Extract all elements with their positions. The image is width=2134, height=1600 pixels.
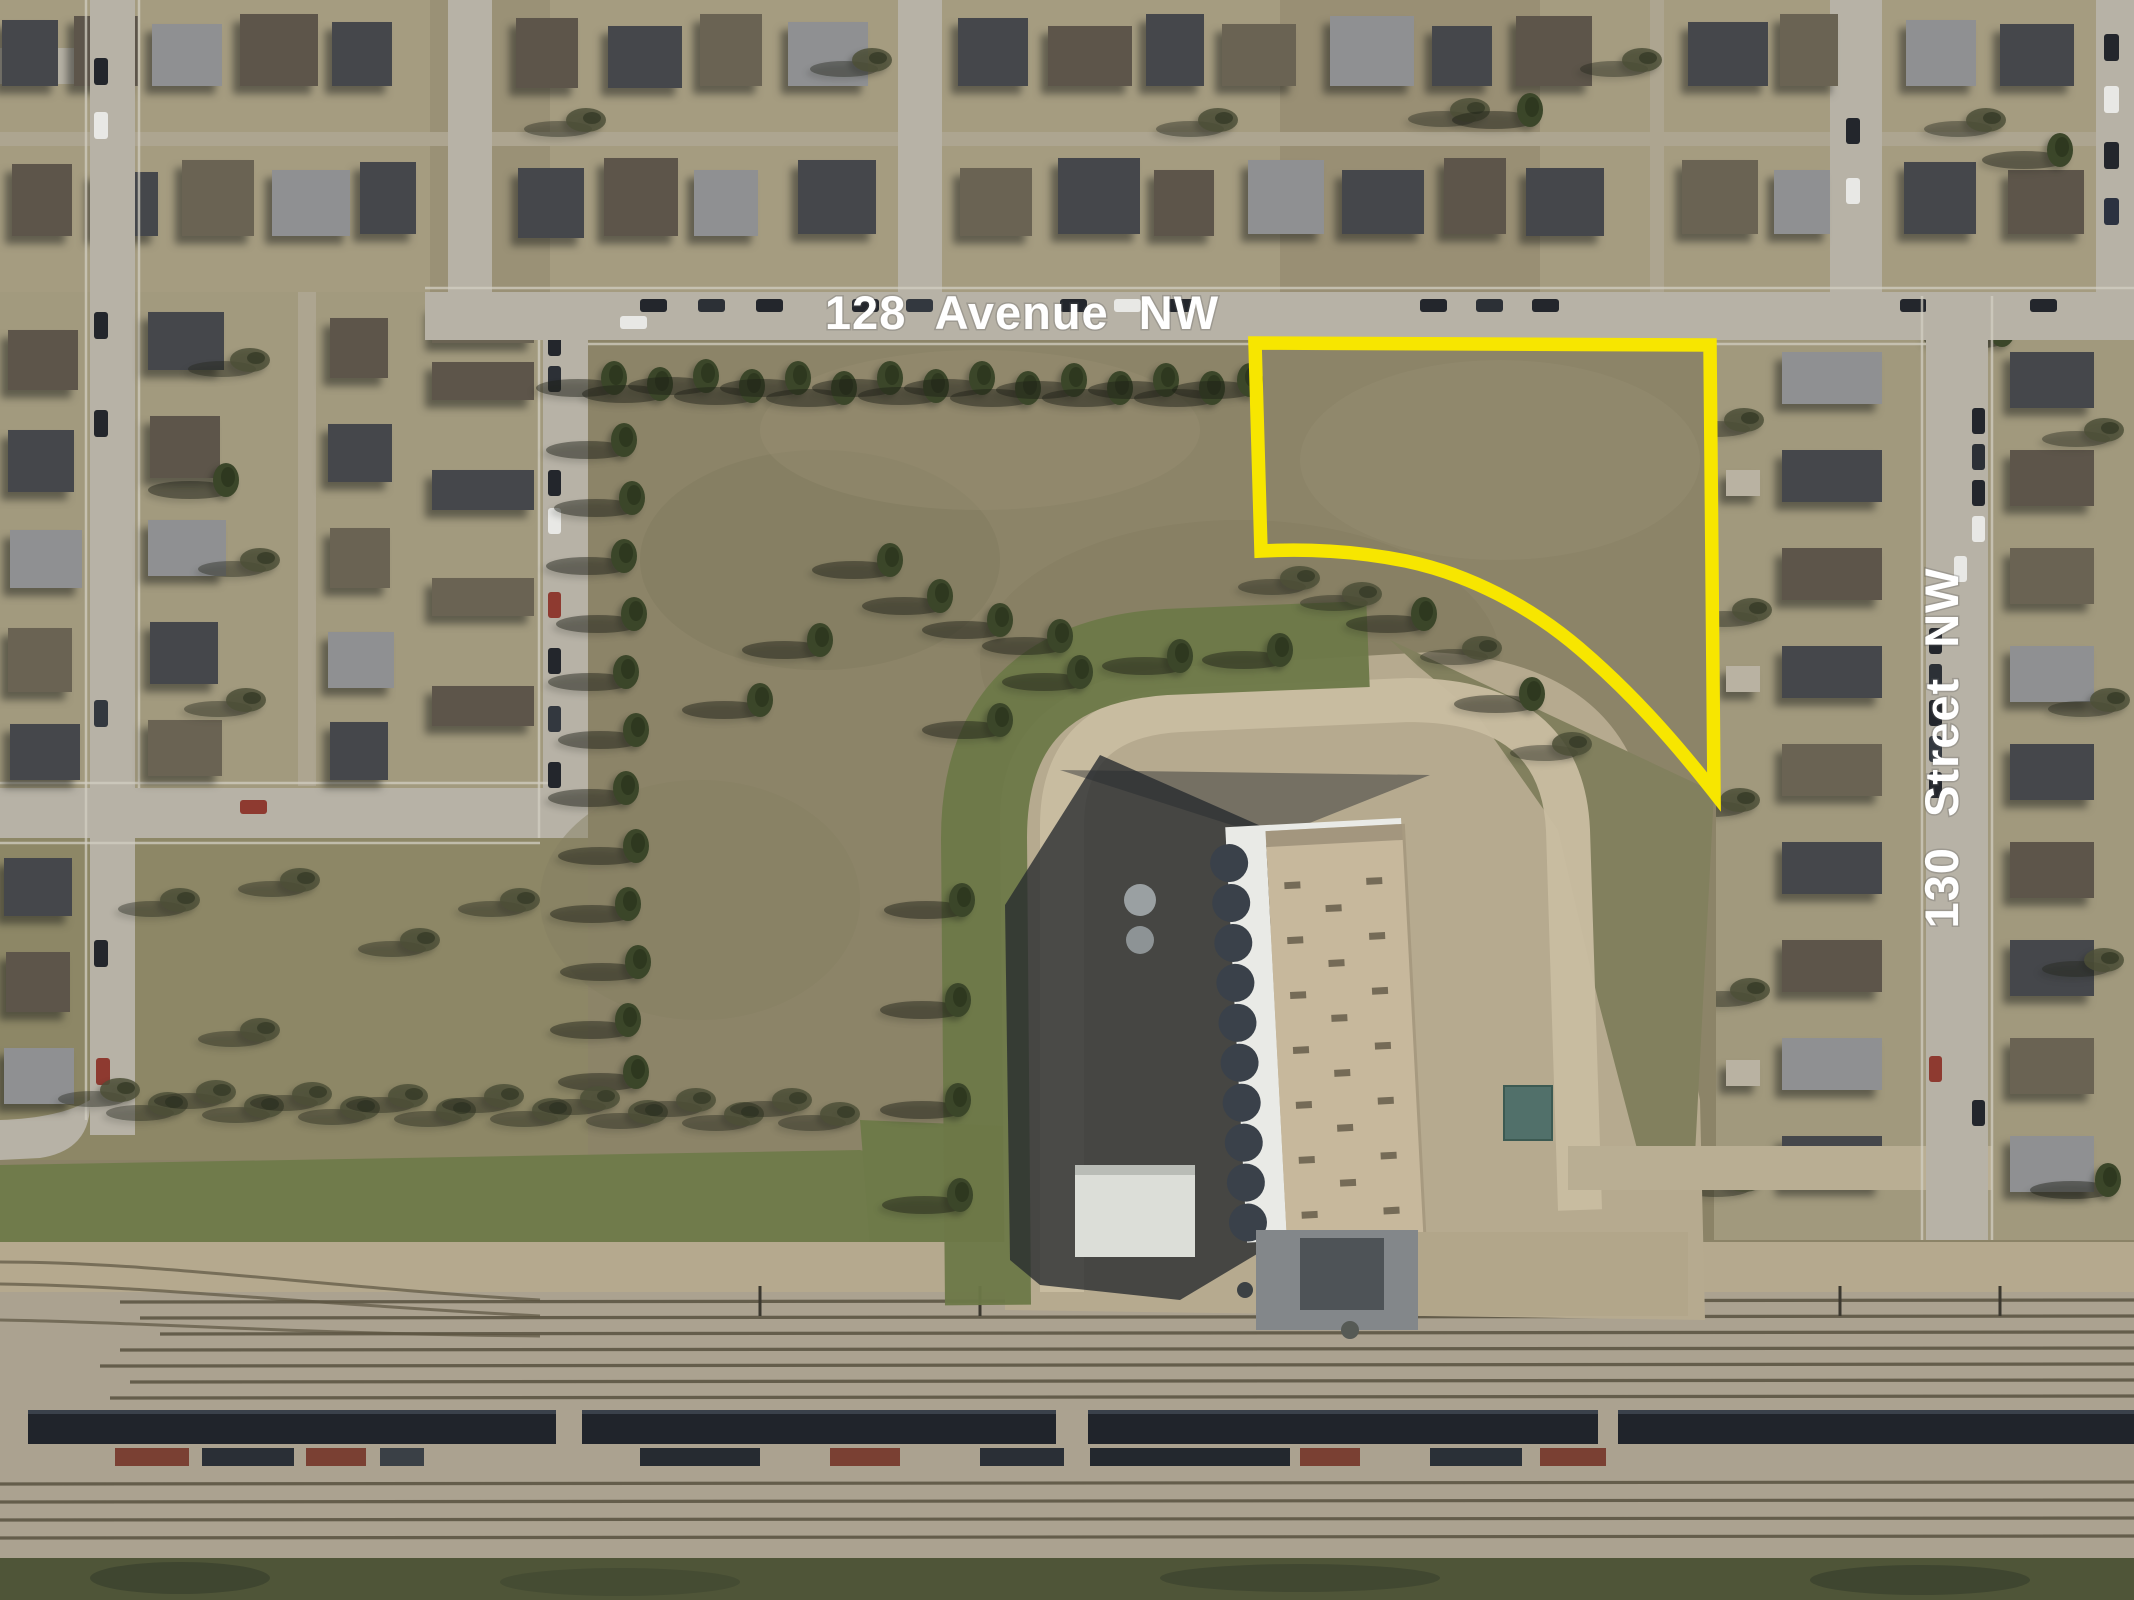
aerial-map: 128 Avenue NW 130 Street NW [0,0,2134,1600]
street-label: 130 Street NW [1915,567,1968,928]
avenue-label: 128 Avenue NW [825,286,1219,339]
neighborhood-north [0,0,2134,292]
white-roof-building [1075,1165,1195,1257]
neighborhood-east [1678,292,2134,1240]
avenue-128-road [425,288,2134,344]
aerial-photo: 128 Avenue NW 130 Street NW [0,0,2134,1600]
transit-garage-building [1208,818,1425,1244]
teal-shed [1504,1086,1552,1140]
